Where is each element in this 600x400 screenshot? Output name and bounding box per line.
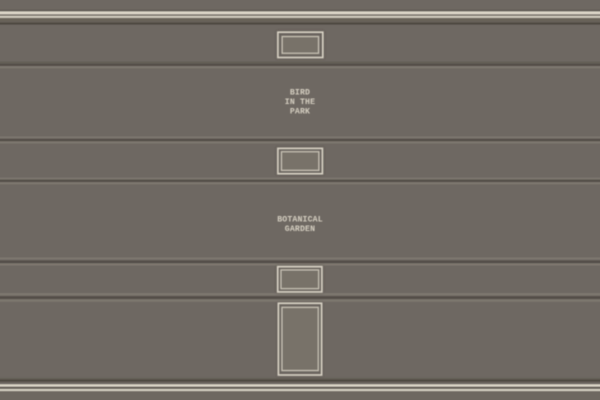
svg-text:PARK: PARK	[290, 108, 310, 117]
svg-text:BIRD: BIRD	[290, 89, 310, 98]
svg-text:IN THE: IN THE	[285, 98, 315, 107]
svg-text:GARDEN: GARDEN	[285, 225, 315, 234]
svg-text:BOTANICAL: BOTANICAL	[277, 216, 323, 225]
